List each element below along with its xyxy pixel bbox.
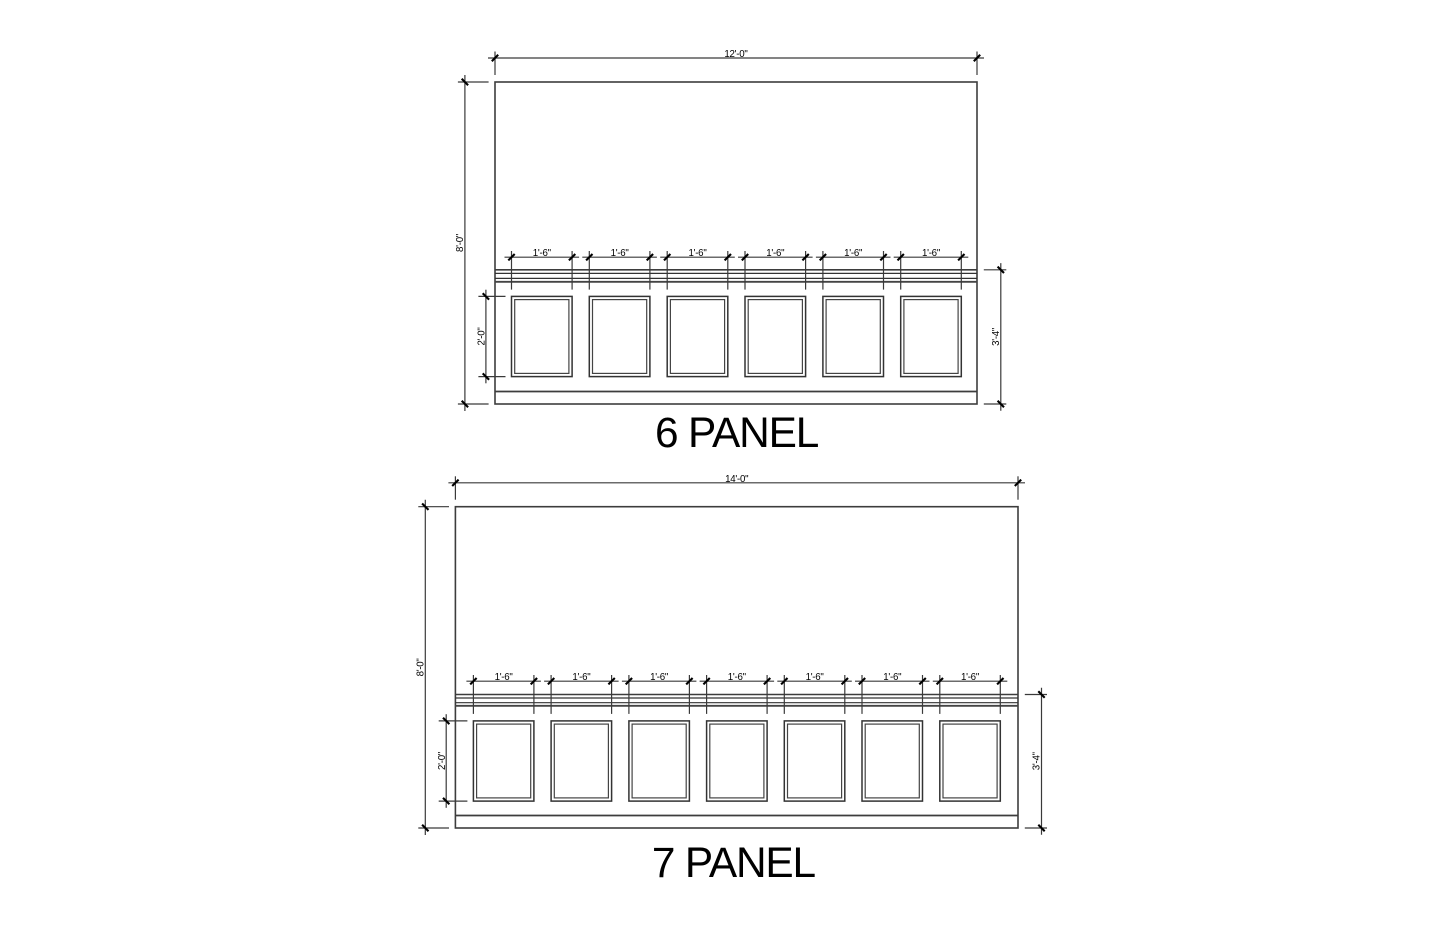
svg-text:1'-6": 1'-6" bbox=[533, 248, 552, 259]
svg-text:1'-6": 1'-6" bbox=[961, 672, 980, 683]
svg-text:1'-6": 1'-6" bbox=[883, 672, 902, 683]
svg-text:1'-6": 1'-6" bbox=[572, 672, 591, 683]
svg-text:1'-6": 1'-6" bbox=[495, 672, 514, 683]
svg-text:8'-0": 8'-0" bbox=[416, 658, 427, 677]
svg-text:2'-0": 2'-0" bbox=[477, 327, 488, 346]
svg-text:12'-0": 12'-0" bbox=[724, 49, 748, 60]
svg-text:2'-0": 2'-0" bbox=[437, 751, 448, 770]
svg-text:1'-6": 1'-6" bbox=[766, 248, 785, 259]
svg-text:6 PANEL: 6 PANEL bbox=[655, 409, 819, 456]
svg-text:14'-0": 14'-0" bbox=[725, 474, 749, 485]
svg-text:1'-6": 1'-6" bbox=[650, 672, 669, 683]
svg-text:3'-4": 3'-4" bbox=[991, 327, 1002, 346]
svg-text:1'-6": 1'-6" bbox=[844, 248, 863, 259]
svg-text:1'-6": 1'-6" bbox=[806, 672, 825, 683]
svg-text:1'-6": 1'-6" bbox=[611, 248, 630, 259]
svg-text:3'-4": 3'-4" bbox=[1032, 751, 1043, 770]
svg-text:1'-6": 1'-6" bbox=[728, 672, 747, 683]
svg-text:1'-6": 1'-6" bbox=[688, 248, 707, 259]
svg-text:8'-0": 8'-0" bbox=[455, 233, 466, 252]
svg-text:7 PANEL: 7 PANEL bbox=[652, 839, 816, 886]
svg-text:1'-6": 1'-6" bbox=[922, 248, 941, 259]
